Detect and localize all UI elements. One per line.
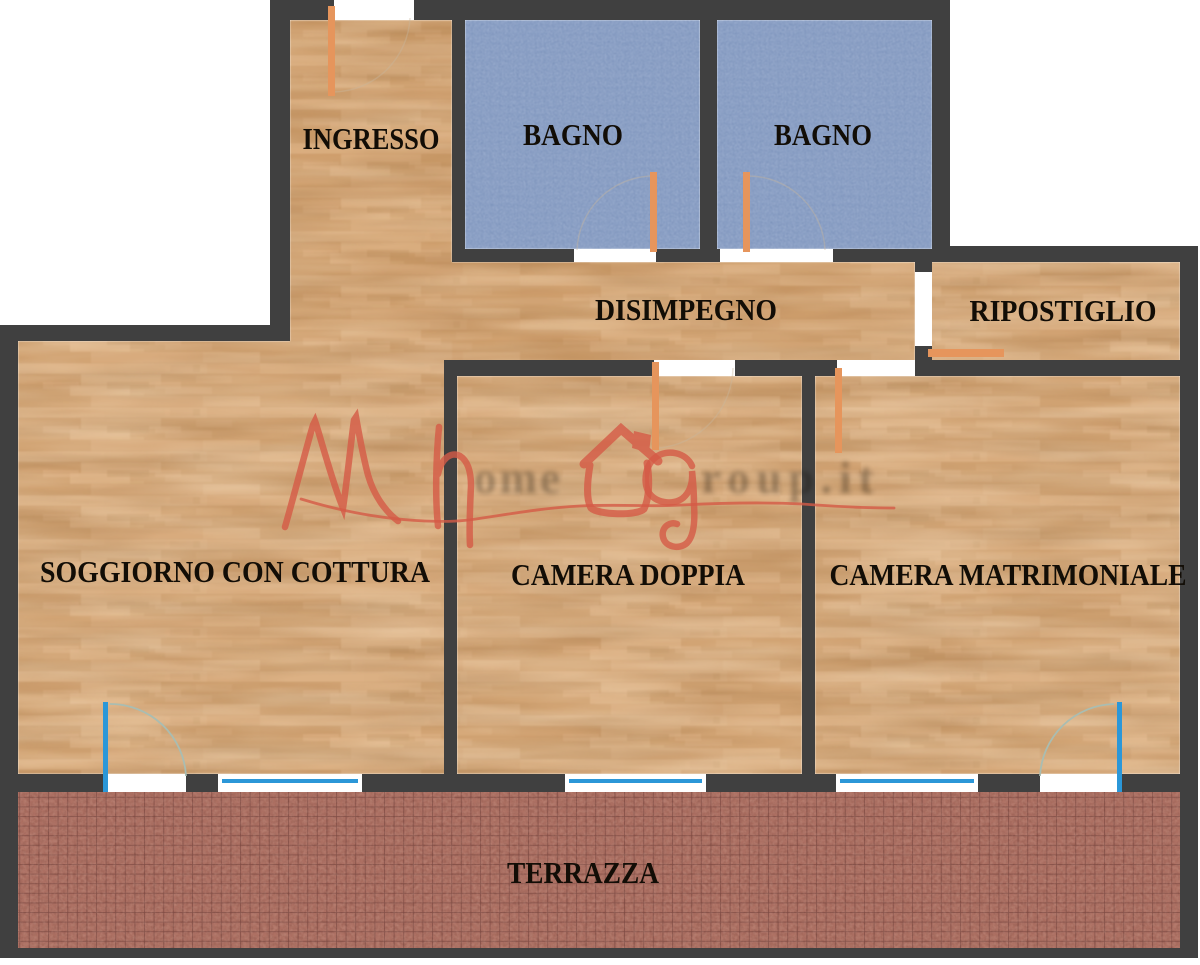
svg-text:DISIMPEGNO: DISIMPEGNO <box>595 292 777 327</box>
svg-text:TERRAZZA: TERRAZZA <box>507 855 660 890</box>
svg-text:ome: ome <box>474 453 563 503</box>
svg-text:INGRESSO: INGRESSO <box>303 121 440 156</box>
svg-text:CAMERA DOPPIA: CAMERA DOPPIA <box>511 557 746 592</box>
svg-text:BAGNO: BAGNO <box>523 117 623 152</box>
svg-text:RIPOSTIGLIO: RIPOSTIGLIO <box>970 293 1157 328</box>
svg-text:SOGGIORNO CON COTTURA: SOGGIORNO CON COTTURA <box>40 554 431 589</box>
svg-text:roup.it: roup.it <box>701 453 880 503</box>
svg-text:CAMERA MATRIMONIALE: CAMERA MATRIMONIALE <box>830 557 1187 592</box>
svg-text:BAGNO: BAGNO <box>774 117 872 152</box>
